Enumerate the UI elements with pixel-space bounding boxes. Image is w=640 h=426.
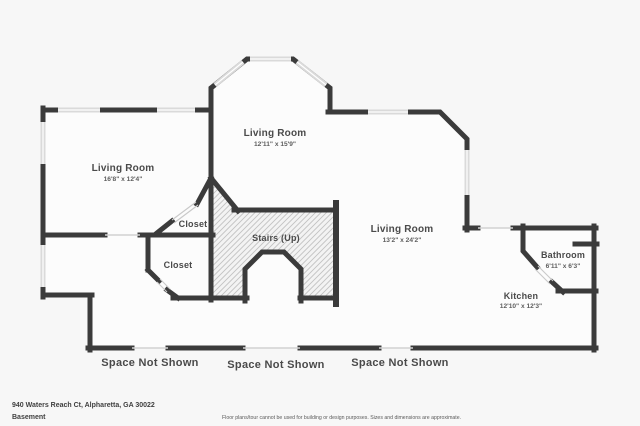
room-label-living-room-left: Living Room — [92, 163, 155, 174]
room-label-stairs: Stairs (Up) — [252, 233, 300, 243]
footer: 940 Waters Reach Ct, Alpharetta, GA 3002… — [12, 402, 461, 421]
floor-plan-canvas: Living Room 16'8" x 12'4" Living Room 12… — [0, 0, 640, 426]
room-label-closet-lower: Closet — [164, 260, 193, 270]
room-label-bathroom: Bathroom — [541, 250, 585, 260]
space-not-shown-3: Space Not Shown — [351, 357, 448, 369]
room-label-living-room-right: Living Room — [371, 224, 434, 235]
floor-plan-page: Living Room 16'8" x 12'4" Living Room 12… — [0, 0, 640, 426]
space-not-shown-1: Space Not Shown — [101, 357, 198, 369]
space-not-shown-2: Space Not Shown — [227, 359, 324, 371]
room-label-kitchen: Kitchen — [504, 291, 538, 301]
room-dims-living-room-right: 13'2" x 24'2" — [383, 237, 422, 244]
room-dims-living-room-middle: 12'11" x 15'9" — [254, 141, 296, 148]
room-dims-kitchen: 12'10" x 12'3" — [500, 303, 542, 310]
floor-level-label: Basement — [12, 414, 46, 421]
room-dims-bathroom: 6'11" x 6'3" — [546, 263, 581, 270]
room-label-closet-upper: Closet — [179, 219, 208, 229]
room-label-living-room-middle: Living Room — [244, 128, 307, 139]
address-text: 940 Waters Reach Ct, Alpharetta, GA 3002… — [12, 402, 155, 409]
space-not-shown-labels: Space Not Shown Space Not Shown Space No… — [101, 357, 448, 371]
disclaimer-text: Floor plans/tour cannot be used for buil… — [222, 415, 461, 421]
room-dims-living-room-left: 16'8" x 12'4" — [104, 176, 143, 183]
